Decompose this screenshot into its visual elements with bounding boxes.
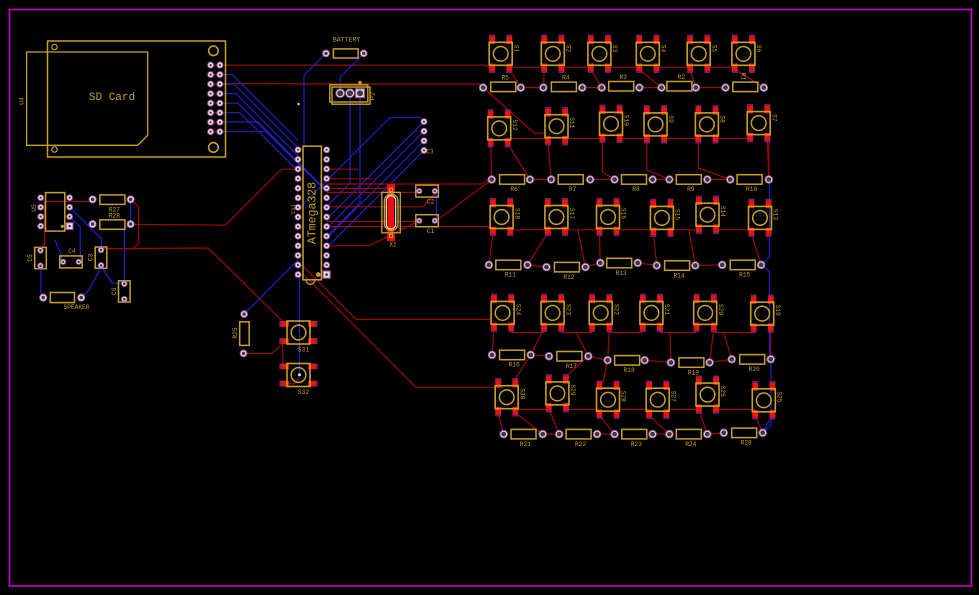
svg-text:R11: R11 xyxy=(505,272,516,279)
svg-text:S11: S11 xyxy=(568,117,575,128)
svg-text:S1: S1 xyxy=(512,45,519,53)
svg-text:S4: S4 xyxy=(660,45,667,53)
svg-text:R20: R20 xyxy=(749,366,760,373)
svg-text:S20: S20 xyxy=(717,304,724,315)
svg-text:C2: C2 xyxy=(427,199,435,206)
svg-text:S31: S31 xyxy=(298,347,309,354)
svg-text:S7: S7 xyxy=(770,114,777,122)
svg-text:R9: R9 xyxy=(687,186,695,193)
svg-text:R23: R23 xyxy=(631,441,642,448)
svg-text:S6: S6 xyxy=(755,45,762,53)
svg-text:R22: R22 xyxy=(575,441,586,448)
svg-text:S27: S27 xyxy=(669,391,676,402)
svg-text:S2: S2 xyxy=(565,45,572,53)
svg-text:R4: R4 xyxy=(562,75,570,82)
svg-text:R24: R24 xyxy=(685,441,696,448)
svg-text:S16: S16 xyxy=(620,208,627,219)
svg-text:R1: R1 xyxy=(739,73,746,81)
svg-text:S24: S24 xyxy=(514,304,521,315)
svg-text:S28: S28 xyxy=(620,391,627,402)
svg-text:R2: R2 xyxy=(678,74,686,81)
svg-text:U4: U4 xyxy=(19,97,26,105)
svg-text:R15: R15 xyxy=(739,272,750,279)
svg-text:C3: C3 xyxy=(88,254,95,262)
svg-text:BATTERY: BATTERY xyxy=(333,37,360,44)
svg-text:R7: R7 xyxy=(569,186,577,193)
svg-text:S21: S21 xyxy=(663,304,670,315)
svg-text:S30: S30 xyxy=(518,388,525,399)
svg-text:C6: C6 xyxy=(111,287,118,295)
svg-text:R17: R17 xyxy=(566,363,577,370)
svg-text:S29: S29 xyxy=(569,384,576,395)
svg-text:R28: R28 xyxy=(741,440,752,447)
svg-text:R28: R28 xyxy=(109,212,120,219)
svg-text:S32: S32 xyxy=(298,389,309,396)
svg-text:S17: S17 xyxy=(568,208,575,219)
svg-text:S13: S13 xyxy=(772,209,779,220)
svg-text:S26: S26 xyxy=(719,386,726,397)
svg-text:S14: S14 xyxy=(719,206,726,217)
svg-text:P2: P2 xyxy=(370,92,378,100)
svg-text:C3: C3 xyxy=(426,149,434,156)
svg-text:R6: R6 xyxy=(510,186,518,193)
svg-text:S10: S10 xyxy=(623,115,630,126)
svg-text:R3: R3 xyxy=(619,74,627,81)
svg-text:S25: S25 xyxy=(776,391,783,402)
svg-text:R8: R8 xyxy=(632,186,640,193)
svg-text:C5: C5 xyxy=(27,254,34,262)
svg-text:C1: C1 xyxy=(427,228,435,235)
svg-text:U5: U5 xyxy=(31,204,38,212)
svg-text:S3: S3 xyxy=(611,45,618,53)
svg-text:R12: R12 xyxy=(563,274,574,281)
svg-text:R13: R13 xyxy=(616,270,627,277)
svg-text:S12: S12 xyxy=(511,119,518,130)
svg-text:R5: R5 xyxy=(501,75,509,82)
svg-text:R18: R18 xyxy=(624,367,635,374)
svg-text:IC1: IC1 xyxy=(290,204,297,215)
svg-text:R25: R25 xyxy=(232,327,239,338)
svg-text:S19: S19 xyxy=(774,305,781,316)
svg-text:S5: S5 xyxy=(710,45,717,53)
svg-text:C4: C4 xyxy=(68,248,76,255)
svg-text:S18: S18 xyxy=(513,208,520,219)
svg-text:S23: S23 xyxy=(564,304,571,315)
svg-text:X1: X1 xyxy=(389,242,397,249)
svg-text:SPEAKER: SPEAKER xyxy=(64,304,90,311)
svg-text:R19: R19 xyxy=(688,369,699,376)
svg-text:S15: S15 xyxy=(674,209,681,220)
svg-text:S9: S9 xyxy=(667,115,674,123)
svg-text:R14: R14 xyxy=(674,272,685,279)
svg-text:ATmega328: ATmega328 xyxy=(307,182,320,244)
svg-text:SD Card: SD Card xyxy=(89,92,135,104)
svg-text:S8: S8 xyxy=(719,115,726,123)
svg-text:R21: R21 xyxy=(520,441,531,448)
svg-text:R16: R16 xyxy=(509,362,520,369)
svg-text:R10: R10 xyxy=(746,186,757,193)
svg-text:S22: S22 xyxy=(612,304,619,315)
